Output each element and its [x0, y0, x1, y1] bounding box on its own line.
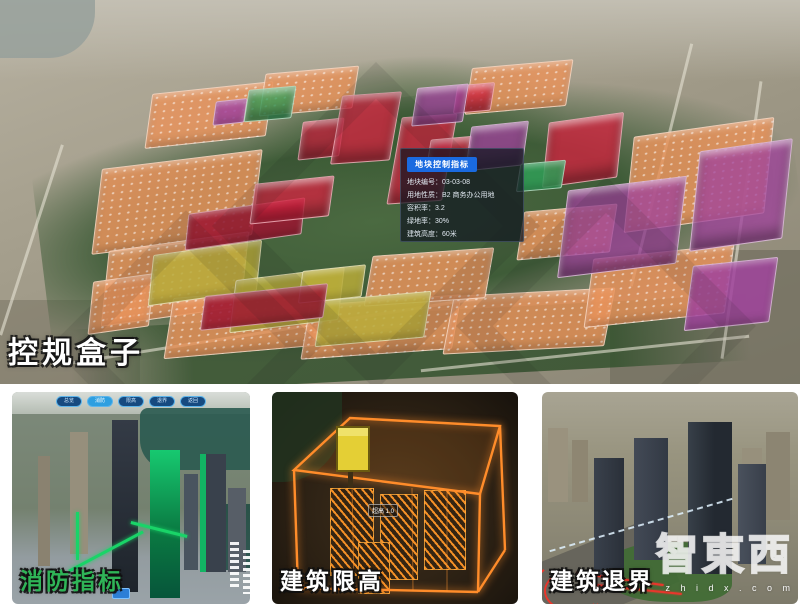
tooltip-row: 建筑高度：60米	[407, 228, 517, 241]
main-caption: 控规盒子	[8, 328, 144, 372]
tooltip-row: 绿地率：30%	[407, 215, 517, 228]
signboard-post	[348, 470, 353, 488]
thumbnail-height-limit: 超高 1.0 建筑限高	[272, 392, 518, 604]
building-fire-highlight	[200, 454, 226, 572]
overheight-tag: 超高 1.0	[368, 504, 398, 517]
view-mode-button[interactable]: 返回	[180, 396, 206, 407]
view-mode-buttons: 总览消防限高退界返回	[12, 396, 250, 407]
zone-block-purple[interactable]	[212, 98, 247, 126]
plot-indicator-tooltip: 地块控制指标 地块编号：03-03-08用地性质：B2 商务办公用地容积率：3.…	[400, 148, 524, 242]
thumbnail-caption-setback: 建筑退界	[550, 562, 654, 596]
building-fire-highlight	[150, 450, 180, 598]
measurement-labels	[230, 542, 239, 590]
view-mode-button[interactable]: 退界	[149, 396, 175, 407]
tooltip-row: 容积率：3.2	[407, 202, 517, 215]
view-mode-button[interactable]: 消防	[87, 396, 113, 407]
building	[70, 432, 88, 554]
thumbnail-setback: 建筑退界	[542, 392, 798, 604]
page: 地块控制指标 地块编号：03-03-08用地性质：B2 商务办公用地容积率：3.…	[0, 0, 800, 609]
tower	[594, 458, 624, 576]
tower	[634, 438, 668, 560]
thumbnail-caption-height: 建筑限高	[280, 562, 384, 596]
building	[766, 432, 790, 520]
signboard	[336, 426, 370, 472]
view-mode-button[interactable]: 总览	[56, 396, 82, 407]
building	[572, 440, 588, 502]
tooltip-title: 地块控制指标	[407, 157, 477, 172]
measurement-labels	[243, 550, 250, 594]
tooltip-row: 地块编号：03-03-08	[407, 176, 517, 189]
building	[548, 428, 568, 502]
tooltip-row: 用地性质：B2 商务办公用地	[407, 189, 517, 202]
thumbnail-caption-fire: 消防指标	[20, 562, 124, 596]
zone-block-purple[interactable]	[689, 138, 793, 252]
fire-route-line	[76, 512, 79, 560]
main-planning-view: 地块控制指标 地块编号：03-03-08用地性质：B2 商务办公用地容积率：3.…	[0, 0, 800, 384]
zone-block-green[interactable]	[244, 86, 297, 123]
view-mode-button[interactable]: 限高	[118, 396, 144, 407]
tower	[688, 422, 732, 574]
building	[38, 456, 50, 566]
tower	[738, 464, 766, 564]
tooltip-rows: 地块编号：03-03-08用地性质：B2 商务办公用地容积率：3.2绿地率：30…	[407, 176, 517, 241]
thumbnail-fire-indicators: 总览消防限高退界返回 消防指标	[12, 392, 250, 604]
building	[184, 474, 198, 570]
